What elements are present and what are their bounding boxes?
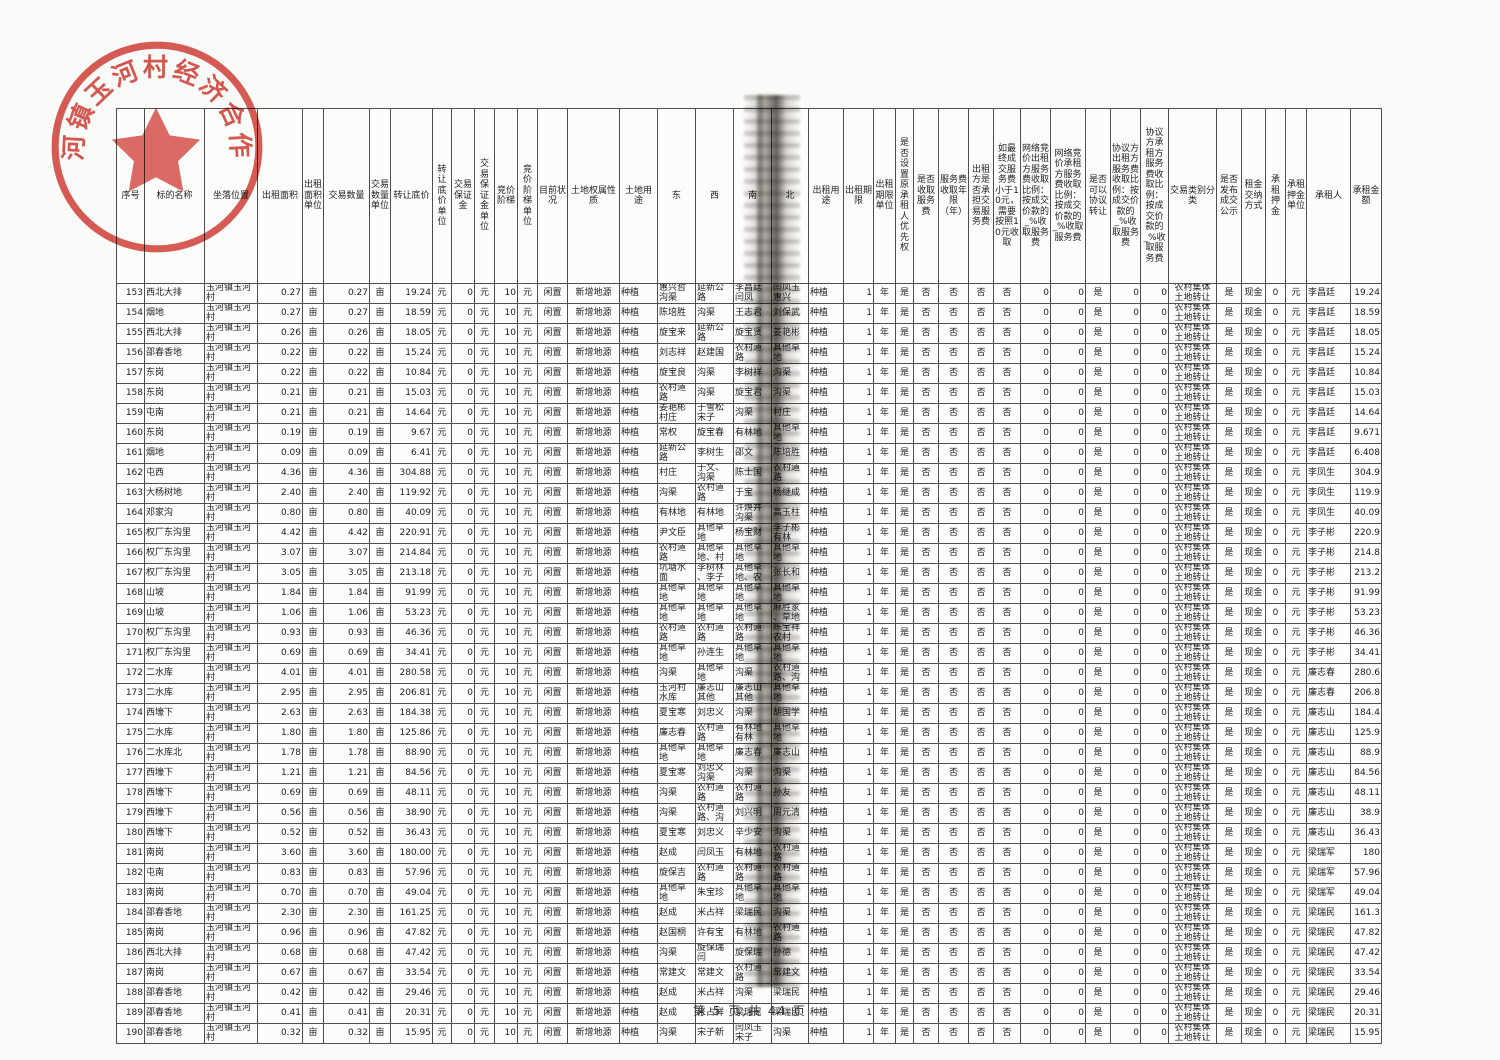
cell-priority: 是: [896, 584, 914, 604]
cell-area: 0.42: [258, 984, 303, 1004]
cell-net_lessor_pct: 0: [1021, 764, 1051, 784]
cell-lessee: 梁瑞民: [1307, 904, 1351, 924]
cell-agr_lessor_pct: 0: [1111, 784, 1141, 804]
cell-agr_lessee_pct: 0: [1141, 764, 1169, 784]
cell-rent_deposit: 0: [1266, 964, 1286, 984]
cell-price: 6.41: [391, 444, 433, 464]
cell-step_unit: 元: [518, 564, 538, 584]
cell-category: 农村集体 土地转让: [1169, 384, 1217, 404]
cell-no: 173: [117, 684, 145, 704]
cell-step: 10: [495, 284, 518, 304]
cell-north: 沟渠: [772, 1024, 809, 1044]
cell-west: 赵建国: [696, 344, 734, 364]
cell-lessor_bears_fee: 否: [969, 624, 994, 644]
cell-east: 其他草 地: [658, 604, 696, 624]
cell-lessee: 廉志山: [1307, 824, 1351, 844]
column-header: 是否收取服务费: [914, 109, 939, 284]
cell-net_lessor_pct: 0: [1021, 584, 1051, 604]
cell-collect_service_fee: 否: [914, 664, 939, 684]
cell-category: 农村集体 土地转让: [1169, 624, 1217, 644]
cell-step: 10: [495, 704, 518, 724]
cell-deposit: 0: [452, 784, 475, 804]
cell-no: 156: [117, 344, 145, 364]
cell-status: 闲置: [538, 704, 568, 724]
cell-fee_years: 否: [939, 564, 969, 584]
cell-east: 常权: [658, 424, 696, 444]
cell-payment: 现金: [1242, 764, 1266, 784]
cell-lessee: 廉志山: [1307, 804, 1351, 824]
cell-lease_use: 种植: [809, 864, 844, 884]
table-row: 182屯南玉河镇玉河村0.83亩0.83亩57.96元0元10元闲置新增地源种植…: [117, 864, 1382, 884]
cell-rent_deposit_unit: 元: [1286, 284, 1307, 304]
cell-amount: 15.95: [1351, 1024, 1382, 1044]
cell-south: 旋宝贤: [734, 324, 772, 344]
cell-status: 闲置: [538, 584, 568, 604]
cell-amount: 10.84: [1351, 364, 1382, 384]
cell-negotiable_transfer: 是: [1086, 484, 1111, 504]
cell-publicity: 是: [1217, 484, 1242, 504]
column-header: 承租金额: [1351, 109, 1382, 284]
cell-rent_deposit: 0: [1266, 884, 1286, 904]
cell-qty_unit: 亩: [370, 484, 391, 504]
cell-term: 1: [844, 624, 874, 644]
cell-lease_use: 种植: [809, 964, 844, 984]
cell-agr_lessor_pct: 0: [1111, 584, 1141, 604]
cell-rent_deposit_unit: 元: [1286, 684, 1307, 704]
cell-location: 玉河镇玉河村: [205, 324, 258, 344]
cell-lease_use: 种植: [809, 524, 844, 544]
cell-location: 玉河镇玉河村: [205, 944, 258, 964]
cell-deposit: 0: [452, 364, 475, 384]
cell-term_unit: 年: [874, 384, 896, 404]
cell-no: 179: [117, 804, 145, 824]
table-row: 174西壕下玉河镇玉河村2.63亩2.63亩184.38元0元10元闲置新增地源…: [117, 704, 1382, 724]
cell-east: 常建文: [658, 964, 696, 984]
cell-qty: 2.30: [324, 904, 370, 924]
cell-term: 1: [844, 324, 874, 344]
column-header: 北: [772, 109, 809, 284]
cell-lease_use: 种植: [809, 784, 844, 804]
cell-fee_years: 否: [939, 524, 969, 544]
cell-publicity: 是: [1217, 284, 1242, 304]
cell-lessor_bears_fee: 否: [969, 704, 994, 724]
cell-priority: 是: [896, 524, 914, 544]
cell-priority: 是: [896, 684, 914, 704]
cell-lessor_bears_fee: 否: [969, 764, 994, 784]
cell-name: 西壕下: [145, 784, 205, 804]
column-header: 协议方出租方服务费收取比例：按成交价款的_%收取服务费: [1111, 109, 1141, 284]
cell-net_lessee_pct: 0: [1051, 664, 1086, 684]
cell-south: 旋宝君: [734, 384, 772, 404]
cell-min_fee_rule: 否: [994, 284, 1021, 304]
cell-term: 1: [844, 904, 874, 924]
cell-area_unit: 亩: [303, 364, 324, 384]
cell-east: 夏宝寒: [658, 824, 696, 844]
cell-west: 沟渠: [696, 364, 734, 384]
cell-qty_unit: 亩: [370, 924, 391, 944]
cell-land_use: 种植: [620, 484, 658, 504]
cell-south: 沟渠: [734, 404, 772, 424]
cell-location: 玉河镇玉河村: [205, 604, 258, 624]
cell-lessor_bears_fee: 否: [969, 464, 994, 484]
column-header: 转让底价单位: [433, 109, 452, 284]
cell-net_lessor_pct: 0: [1021, 984, 1051, 1004]
cell-name: 烟地: [145, 444, 205, 464]
cell-qty_unit: 亩: [370, 444, 391, 464]
cell-collect_service_fee: 否: [914, 624, 939, 644]
cell-min_fee_rule: 否: [994, 544, 1021, 564]
cell-status: 闲置: [538, 924, 568, 944]
cell-rent_deposit: 0: [1266, 864, 1286, 884]
cell-step_unit: 元: [518, 724, 538, 744]
cell-price_unit: 元: [433, 784, 452, 804]
cell-location: 玉河镇玉河村: [205, 924, 258, 944]
table-row: 168山坡玉河镇玉河村1.84亩1.84亩91.99元0元10元闲置新增地源种植…: [117, 584, 1382, 604]
cell-no: 181: [117, 844, 145, 864]
cell-amount: 29.46: [1351, 984, 1382, 1004]
cell-step: 10: [495, 424, 518, 444]
cell-lease_use: 种植: [809, 564, 844, 584]
cell-fee_years: 否: [939, 824, 969, 844]
cell-north: 梁瑞民: [772, 984, 809, 1004]
cell-no: 165: [117, 524, 145, 544]
cell-lessee: 李昌廷: [1307, 404, 1351, 424]
cell-agr_lessor_pct: 0: [1111, 504, 1141, 524]
cell-deposit_unit: 元: [475, 504, 495, 524]
cell-price: 48.11: [391, 784, 433, 804]
cell-location: 玉河镇玉河村: [205, 844, 258, 864]
cell-payment: 现金: [1242, 344, 1266, 364]
cell-step_unit: 元: [518, 424, 538, 444]
cell-net_lessor_pct: 0: [1021, 324, 1051, 344]
cell-area_unit: 亩: [303, 544, 324, 564]
cell-term: 1: [844, 304, 874, 324]
cell-agr_lessor_pct: 0: [1111, 884, 1141, 904]
cell-price: 213.18: [391, 564, 433, 584]
table-row: 183南岗玉河镇玉河村0.70亩0.70亩49.04元0元10元闲置新增地源种植…: [117, 884, 1382, 904]
cell-publicity: 是: [1217, 744, 1242, 764]
cell-category: 农村集体 土地转让: [1169, 964, 1217, 984]
cell-deposit: 0: [452, 944, 475, 964]
cell-area: 1.78: [258, 744, 303, 764]
cell-agr_lessor_pct: 0: [1111, 424, 1141, 444]
cell-price_unit: 元: [433, 964, 452, 984]
table-row: 159屯南玉河镇玉河村0.21亩0.21亩14.64元0元10元闲置新增地源种植…: [117, 404, 1382, 424]
cell-step: 10: [495, 444, 518, 464]
cell-price: 15.95: [391, 1024, 433, 1044]
cell-name: 西北大排: [145, 944, 205, 964]
cell-deposit_unit: 元: [475, 404, 495, 424]
cell-agr_lessee_pct: 0: [1141, 544, 1169, 564]
cell-deposit: 0: [452, 484, 475, 504]
cell-publicity: 是: [1217, 724, 1242, 744]
cell-term: 1: [844, 644, 874, 664]
cell-negotiable_transfer: 是: [1086, 904, 1111, 924]
cell-term_unit: 年: [874, 904, 896, 924]
cell-north: 农村道 路: [772, 844, 809, 864]
cell-term_unit: 年: [874, 484, 896, 504]
cell-qty_unit: 亩: [370, 904, 391, 924]
cell-name: 屯南: [145, 404, 205, 424]
cell-area_unit: 亩: [303, 744, 324, 764]
cell-min_fee_rule: 否: [994, 704, 1021, 724]
cell-price_unit: 元: [433, 744, 452, 764]
cell-qty_unit: 亩: [370, 684, 391, 704]
cell-name: 邓家沟: [145, 504, 205, 524]
cell-price_unit: 元: [433, 844, 452, 864]
cell-west: 农村道 路: [696, 624, 734, 644]
cell-term_unit: 年: [874, 724, 896, 744]
cell-amount: 125.9: [1351, 724, 1382, 744]
cell-qty: 0.80: [324, 504, 370, 524]
cell-ownership: 新增地源: [568, 924, 620, 944]
cell-area_unit: 亩: [303, 884, 324, 904]
cell-step_unit: 元: [518, 384, 538, 404]
cell-term_unit: 年: [874, 424, 896, 444]
cell-west: 农村道 路: [696, 864, 734, 884]
cell-net_lessee_pct: 0: [1051, 844, 1086, 864]
cell-negotiable_transfer: 是: [1086, 844, 1111, 864]
cell-area_unit: 亩: [303, 424, 324, 444]
cell-location: 玉河镇玉河村: [205, 664, 258, 684]
cell-lessee: 李凤生: [1307, 464, 1351, 484]
cell-amount: 213.2: [1351, 564, 1382, 584]
cell-ownership: 新增地源: [568, 344, 620, 364]
cell-price_unit: 元: [433, 324, 452, 344]
cell-lease_use: 种植: [809, 724, 844, 744]
cell-payment: 现金: [1242, 364, 1266, 384]
cell-lessee: 李昌廷: [1307, 304, 1351, 324]
cell-payment: 现金: [1242, 804, 1266, 824]
cell-deposit_unit: 元: [475, 984, 495, 1004]
cell-price_unit: 元: [433, 484, 452, 504]
cell-net_lessee_pct: 0: [1051, 544, 1086, 564]
cell-ownership: 新增地源: [568, 604, 620, 624]
cell-min_fee_rule: 否: [994, 684, 1021, 704]
cell-area: 4.36: [258, 464, 303, 484]
cell-rent_deposit_unit: 元: [1286, 484, 1307, 504]
cell-publicity: 是: [1217, 344, 1242, 364]
cell-net_lessee_pct: 0: [1051, 1024, 1086, 1044]
cell-net_lessee_pct: 0: [1051, 324, 1086, 344]
cell-deposit: 0: [452, 344, 475, 364]
column-header: 是否设置原承租人优先权: [896, 109, 914, 284]
cell-rent_deposit_unit: 元: [1286, 884, 1307, 904]
cell-term: 1: [844, 504, 874, 524]
cell-north: 张长和: [772, 564, 809, 584]
cell-lessor_bears_fee: 否: [969, 744, 994, 764]
cell-area_unit: 亩: [303, 904, 324, 924]
table-row: 179西壕下玉河镇玉河村0.56亩0.56亩38.90元0元10元闲置新增地源种…: [117, 804, 1382, 824]
cell-deposit_unit: 元: [475, 484, 495, 504]
cell-publicity: 是: [1217, 884, 1242, 904]
table-row: 178西壕下玉河镇玉河村0.69亩0.69亩48.11元0元10元闲置新增地源种…: [117, 784, 1382, 804]
cell-agr_lessee_pct: 0: [1141, 524, 1169, 544]
cell-price: 214.84: [391, 544, 433, 564]
cell-east: 其他草 地: [658, 884, 696, 904]
cell-agr_lessee_pct: 0: [1141, 484, 1169, 504]
cell-qty_unit: 亩: [370, 324, 391, 344]
cell-lessor_bears_fee: 否: [969, 284, 994, 304]
cell-net_lessor_pct: 0: [1021, 384, 1051, 404]
cell-area: 3.60: [258, 844, 303, 864]
cell-step_unit: 元: [518, 1024, 538, 1044]
cell-agr_lessor_pct: 0: [1111, 744, 1141, 764]
table-row: 169山坡玉河镇玉河村1.06亩1.06亩53.23元0元10元闲置新增地源种植…: [117, 604, 1382, 624]
cell-east: 延新公 路: [658, 444, 696, 464]
cell-lease_use: 种植: [809, 364, 844, 384]
cell-deposit_unit: 元: [475, 744, 495, 764]
cell-north: 农村道 路: [772, 924, 809, 944]
cell-area_unit: 亩: [303, 624, 324, 644]
cell-negotiable_transfer: 是: [1086, 924, 1111, 944]
cell-north: 其他草 地: [772, 724, 809, 744]
cell-status: 闲置: [538, 404, 568, 424]
cell-area: 0.96: [258, 924, 303, 944]
cell-rent_deposit: 0: [1266, 824, 1286, 844]
cell-net_lessor_pct: 0: [1021, 344, 1051, 364]
table-row: 177西壕下玉河镇玉河村1.21亩1.21亩84.56元0元10元闲置新增地源种…: [117, 764, 1382, 784]
cell-step_unit: 元: [518, 664, 538, 684]
cell-priority: 是: [896, 904, 914, 924]
cell-negotiable_transfer: 是: [1086, 944, 1111, 964]
cell-no: 172: [117, 664, 145, 684]
cell-min_fee_rule: 否: [994, 884, 1021, 904]
cell-east: 村庄: [658, 464, 696, 484]
cell-status: 闲置: [538, 464, 568, 484]
cell-priority: 是: [896, 484, 914, 504]
cell-rent_deposit_unit: 元: [1286, 564, 1307, 584]
cell-net_lessee_pct: 0: [1051, 384, 1086, 404]
cell-agr_lessor_pct: 0: [1111, 544, 1141, 564]
cell-price_unit: 元: [433, 604, 452, 624]
cell-collect_service_fee: 否: [914, 464, 939, 484]
cell-payment: 现金: [1242, 664, 1266, 684]
cell-collect_service_fee: 否: [914, 604, 939, 624]
table-row: 157东岗玉河镇玉河村0.22亩0.22亩10.84元0元10元闲置新增地源种植…: [117, 364, 1382, 384]
cell-net_lessee_pct: 0: [1051, 444, 1086, 464]
cell-step_unit: 元: [518, 364, 538, 384]
cell-price: 280.58: [391, 664, 433, 684]
cell-south: 农村道 路: [734, 784, 772, 804]
cell-step_unit: 元: [518, 684, 538, 704]
cell-lessor_bears_fee: 否: [969, 384, 994, 404]
table-row: 186西北大排玉河镇玉河村0.68亩0.68亩47.42元0元10元闲置新增地源…: [117, 944, 1382, 964]
cell-north: 孙德: [772, 944, 809, 964]
cell-ownership: 新增地源: [568, 584, 620, 604]
column-header: 承租押金: [1266, 109, 1286, 284]
cell-qty: 2.95: [324, 684, 370, 704]
cell-term_unit: 年: [874, 604, 896, 624]
cell-price: 15.24: [391, 344, 433, 364]
cell-lessee: 梁瑞军: [1307, 864, 1351, 884]
cell-rent_deposit: 0: [1266, 304, 1286, 324]
cell-agr_lessor_pct: 0: [1111, 324, 1141, 344]
cell-qty: 1.80: [324, 724, 370, 744]
cell-term_unit: 年: [874, 664, 896, 684]
cell-price: 14.64: [391, 404, 433, 424]
cell-no: 171: [117, 644, 145, 664]
cell-priority: 是: [896, 924, 914, 944]
cell-min_fee_rule: 否: [994, 784, 1021, 804]
cell-area_unit: 亩: [303, 824, 324, 844]
column-header: 如最终成交服务费小于10元，需要按照10元收取: [994, 109, 1021, 284]
cell-fee_years: 否: [939, 964, 969, 984]
cell-status: 闲置: [538, 964, 568, 984]
cell-min_fee_rule: 否: [994, 324, 1021, 344]
column-header: 东: [658, 109, 696, 284]
cell-step_unit: 元: [518, 964, 538, 984]
cell-deposit: 0: [452, 324, 475, 344]
cell-lease_use: 种植: [809, 344, 844, 364]
cell-rent_deposit_unit: 元: [1286, 444, 1307, 464]
cell-amount: 53.23: [1351, 604, 1382, 624]
cell-north: 周元清: [772, 804, 809, 824]
cell-negotiable_transfer: 是: [1086, 524, 1111, 544]
cell-status: 闲置: [538, 344, 568, 364]
cell-lease_use: 种植: [809, 884, 844, 904]
cell-agr_lessee_pct: 0: [1141, 624, 1169, 644]
table-row: 162屯西玉河镇玉河村4.36亩4.36亩304.88元0元10元闲置新增地源种…: [117, 464, 1382, 484]
cell-publicity: 是: [1217, 944, 1242, 964]
cell-fee_years: 否: [939, 624, 969, 644]
cell-term_unit: 年: [874, 864, 896, 884]
cell-publicity: 是: [1217, 924, 1242, 944]
cell-status: 闲置: [538, 824, 568, 844]
cell-west: 朱宝珍: [696, 884, 734, 904]
cell-category: 农村集体 土地转让: [1169, 804, 1217, 824]
cell-north: 姜艳彬: [772, 324, 809, 344]
cell-min_fee_rule: 否: [994, 864, 1021, 884]
cell-north: 农村道 路: [772, 864, 809, 884]
cell-west: 李树生: [696, 444, 734, 464]
cell-term_unit: 年: [874, 684, 896, 704]
cell-name: 南岗: [145, 844, 205, 864]
cell-rent_deposit: 0: [1266, 444, 1286, 464]
cell-qty_unit: 亩: [370, 604, 391, 624]
cell-west: 沟渠: [696, 384, 734, 404]
cell-land_use: 种植: [620, 544, 658, 564]
cell-rent_deposit: 0: [1266, 724, 1286, 744]
cell-land_use: 种植: [620, 1024, 658, 1044]
cell-price: 304.88: [391, 464, 433, 484]
cell-qty_unit: 亩: [370, 644, 391, 664]
cell-rent_deposit: 0: [1266, 944, 1286, 964]
cell-rent_deposit: 0: [1266, 844, 1286, 864]
cell-step: 10: [495, 304, 518, 324]
cell-price_unit: 元: [433, 584, 452, 604]
cell-south: 其他草 地: [734, 604, 772, 624]
cell-east: 赵国桐: [658, 924, 696, 944]
cell-payment: 现金: [1242, 924, 1266, 944]
cell-north: 闫凤玉 惠兴: [772, 284, 809, 304]
cell-rent_deposit: 0: [1266, 584, 1286, 604]
cell-area_unit: 亩: [303, 344, 324, 364]
cell-lessee: 李子彬: [1307, 524, 1351, 544]
cell-north: 沟渠: [772, 764, 809, 784]
cell-ownership: 新增地源: [568, 864, 620, 884]
cell-category: 农村集体 土地转让: [1169, 844, 1217, 864]
cell-category: 农村集体 土地转让: [1169, 784, 1217, 804]
cell-term: 1: [844, 584, 874, 604]
cell-west: 农村道 路: [696, 784, 734, 804]
cell-publicity: 是: [1217, 864, 1242, 884]
cell-deposit_unit: 元: [475, 564, 495, 584]
cell-north: 其他草 地: [772, 544, 809, 564]
cell-amount: 220.9: [1351, 524, 1382, 544]
cell-qty_unit: 亩: [370, 544, 391, 564]
cell-step_unit: 元: [518, 464, 538, 484]
